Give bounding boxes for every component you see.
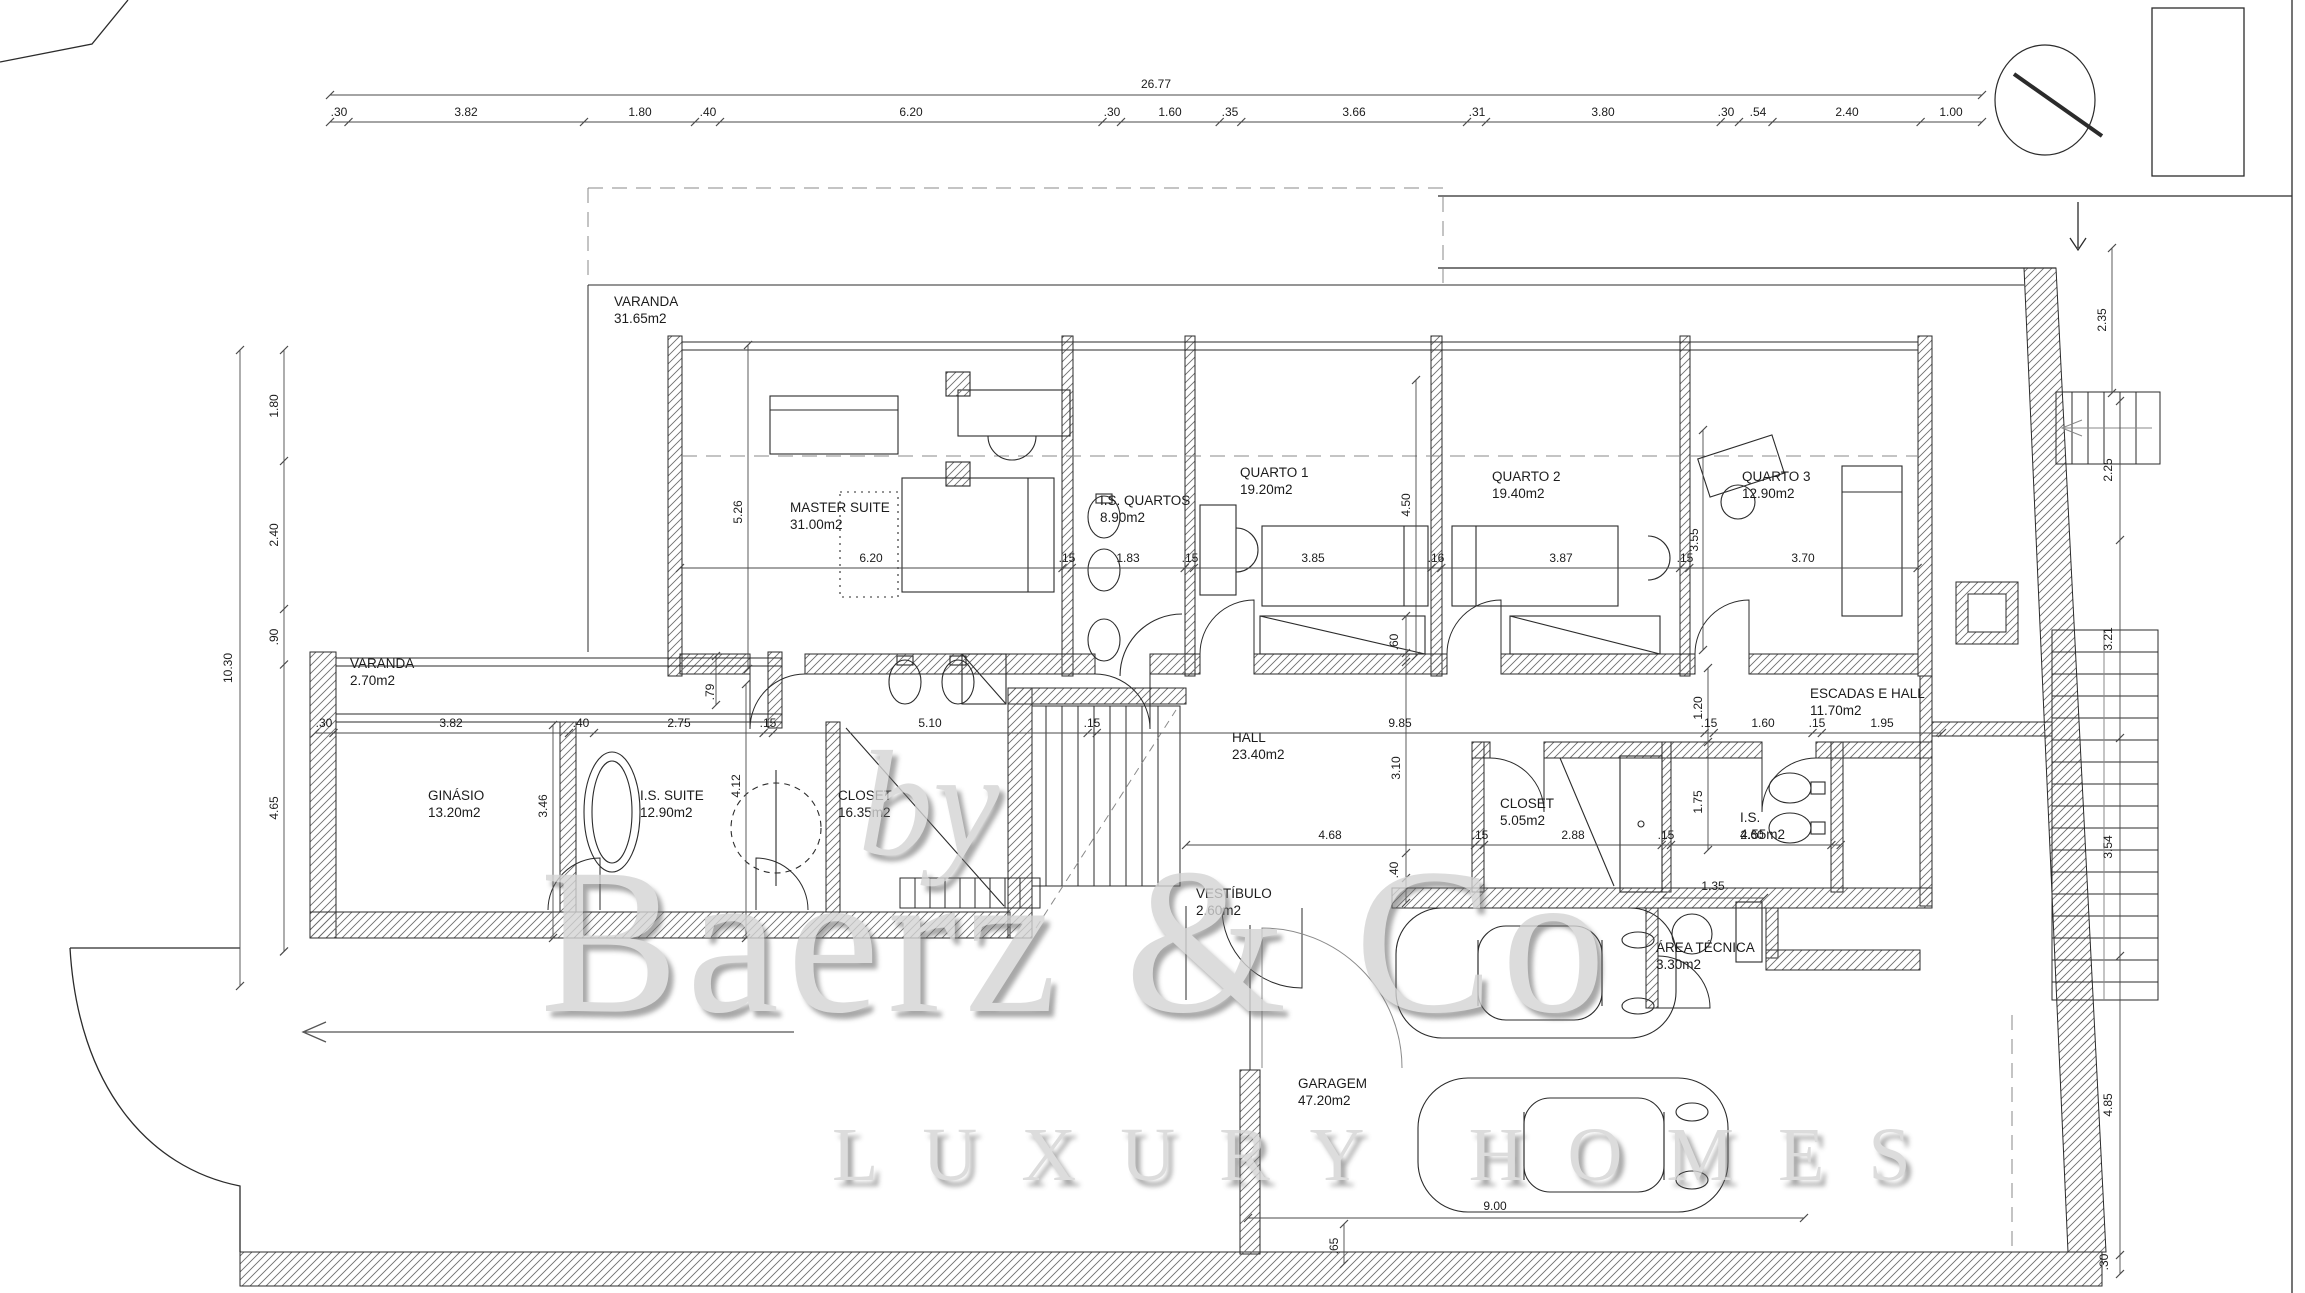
- room-label: QUARTO 119.20m2: [1240, 465, 1309, 497]
- dimension-label: .30: [1718, 105, 1735, 119]
- site-boundary: [0, 0, 2292, 1293]
- dimension-label: 3.55: [1687, 528, 1701, 552]
- car-2: [1418, 1078, 1728, 1212]
- dimension-label: 2.88: [1561, 828, 1585, 842]
- dimension-label: .30: [316, 716, 333, 730]
- dimension-label: 3.10: [1389, 756, 1403, 780]
- dimension-label: 5.10: [918, 716, 942, 730]
- dimension-label: .40: [573, 716, 590, 730]
- master-bed: [902, 478, 1054, 592]
- dimension-label: 4.85: [2101, 1093, 2115, 1117]
- walls: [240, 268, 2106, 1286]
- dimension-label: .65: [1327, 1237, 1341, 1254]
- bed: [1262, 526, 1428, 606]
- chair: [1236, 528, 1258, 572]
- room-label: GINÁSIO13.20m2: [428, 788, 484, 820]
- room-label: CLOSET16.35m2: [838, 788, 892, 820]
- shower-stall: [1620, 756, 1662, 892]
- dimension-label: 2.25: [2101, 458, 2115, 482]
- dimension-label: .30: [331, 105, 348, 119]
- dimension-label: 1.60: [1751, 716, 1775, 730]
- dimension-label: 4.12: [729, 774, 743, 798]
- dimension-label: 4.50: [1399, 493, 1413, 517]
- dimension-label: .35: [1222, 105, 1239, 119]
- dimension-label: 1.00: [1939, 105, 1963, 119]
- dimension-label: 3.82: [439, 716, 463, 730]
- floor-plan-page: VARANDA31.65m2MASTER SUITE31.00m2I.S. QU…: [0, 0, 2305, 1293]
- dimension-label: 3.80: [1591, 105, 1615, 119]
- dimension-label: .60: [1387, 633, 1401, 650]
- dimension-label: 3.54: [2101, 835, 2115, 859]
- dimension-label: 3.21: [2101, 627, 2115, 651]
- room-label: QUARTO 312.90m2: [1742, 469, 1811, 501]
- desk: [1200, 505, 1236, 595]
- dimension-label: .54: [1750, 105, 1767, 119]
- dimension-label: .90: [267, 628, 281, 645]
- central-staircase: [900, 706, 1180, 928]
- dimension-label: .15: [1182, 551, 1199, 565]
- room-label: QUARTO 219.40m2: [1492, 469, 1561, 501]
- dimension-label: .15: [1084, 716, 1101, 730]
- dimension-label: .79: [703, 683, 717, 700]
- dimension-label: 2.40: [1835, 105, 1859, 119]
- washbasin: [1088, 619, 1120, 661]
- dimension-label: 1.35: [1701, 879, 1725, 893]
- dimension-label: 3.66: [1342, 105, 1366, 119]
- dimension-label: .15: [1472, 828, 1489, 842]
- dimension-label: 9.85: [1388, 716, 1412, 730]
- dimension-label: 4.68: [1318, 828, 1342, 842]
- dimension-label: .15: [1701, 716, 1718, 730]
- dimension-label: 1.75: [1691, 790, 1705, 814]
- dimension-label: .15: [1658, 828, 1675, 842]
- room-label: GARAGEM47.20m2: [1298, 1076, 1367, 1108]
- dimension-label: 6.20: [859, 551, 883, 565]
- dimension-label: .30: [2097, 1253, 2111, 1270]
- dimension-label: .15: [760, 716, 777, 730]
- dimension-label: 10.30: [221, 653, 235, 683]
- dimension-label: .31: [1469, 105, 1486, 119]
- dimension-label: 2.75: [667, 716, 691, 730]
- bed: [1452, 526, 1618, 606]
- room-label: CLOSET5.05m2: [1500, 796, 1554, 828]
- north-indicator-circle: [1995, 45, 2102, 155]
- room-label: HALL23.40m2: [1232, 730, 1285, 762]
- chair: [1648, 536, 1670, 580]
- bidet: [1088, 549, 1120, 591]
- dimension-label: 5.26: [731, 500, 745, 524]
- room-label: VARANDA2.70m2: [350, 656, 414, 688]
- room-label: ÁREA TÉCNICA3.30m2: [1656, 940, 1755, 972]
- sofa: [770, 396, 898, 454]
- floor-plan-drawing: VARANDA31.65m2MASTER SUITE31.00m2I.S. QU…: [0, 0, 2305, 1293]
- dimension-label: 1.80: [628, 105, 652, 119]
- washbasin: [1769, 773, 1811, 803]
- dimension-label: 1.60: [1158, 105, 1182, 119]
- room-label: VARANDA31.65m2: [614, 294, 678, 326]
- dimension-label: .40: [700, 105, 717, 119]
- dimension-label: 1.80: [267, 394, 281, 418]
- dimension-label: .15: [1059, 551, 1076, 565]
- room-label: VESTÍBULO2.60m2: [1196, 886, 1272, 918]
- dimension-label: 2.35: [2095, 308, 2109, 332]
- dimension-label: .15: [1809, 716, 1826, 730]
- dimension-lines: [236, 91, 2124, 1278]
- dimension-label: 2.40: [267, 523, 281, 547]
- dimension-label: 1.95: [1870, 716, 1894, 730]
- dimension-label: 1.83: [1116, 551, 1140, 565]
- dimension-label: .40: [1387, 861, 1401, 878]
- dimension-label: .30: [1104, 105, 1121, 119]
- dimension-label: .15: [1677, 551, 1694, 565]
- dimension-label: 3.82: [454, 105, 478, 119]
- dimension-label: .16: [1428, 551, 1445, 565]
- dimension-label: 4.65: [267, 796, 281, 820]
- room-label: ESCADAS E HALL11.70m2: [1810, 686, 1925, 718]
- desk: [958, 390, 1070, 436]
- dimension-label: 3.70: [1791, 551, 1815, 565]
- room-label: I.S. SUITE12.90m2: [640, 788, 704, 820]
- dimension-label: 3.87: [1549, 551, 1573, 565]
- dimension-label: 9.00: [1483, 1199, 1507, 1213]
- dimension-label: 6.20: [899, 105, 923, 119]
- car-1: [1396, 908, 1676, 1038]
- shaft-inner: [1968, 594, 2006, 632]
- dimension-label: 2.60: [1740, 828, 1764, 842]
- dimension-label: 26.77: [1141, 77, 1171, 91]
- room-label: I.S. QUARTOS8.90m2: [1100, 493, 1190, 525]
- bed: [1842, 466, 1902, 616]
- dimension-label: 3.46: [536, 794, 550, 818]
- dimension-label: 3.85: [1301, 551, 1325, 565]
